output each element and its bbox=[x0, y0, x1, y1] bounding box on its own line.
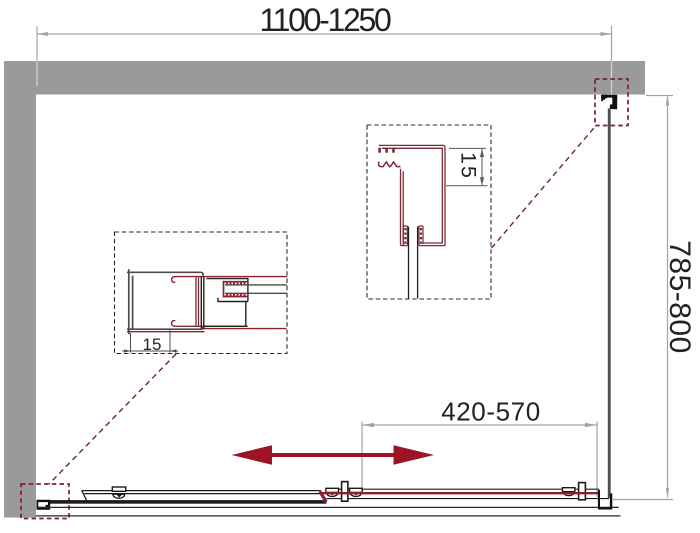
svg-text:15: 15 bbox=[457, 152, 481, 180]
svg-text:1100-1250: 1100-1250 bbox=[260, 2, 391, 38]
svg-text:420-570: 420-570 bbox=[441, 396, 541, 426]
svg-text:15: 15 bbox=[143, 335, 162, 354]
svg-text:785-800: 785-800 bbox=[663, 240, 696, 354]
